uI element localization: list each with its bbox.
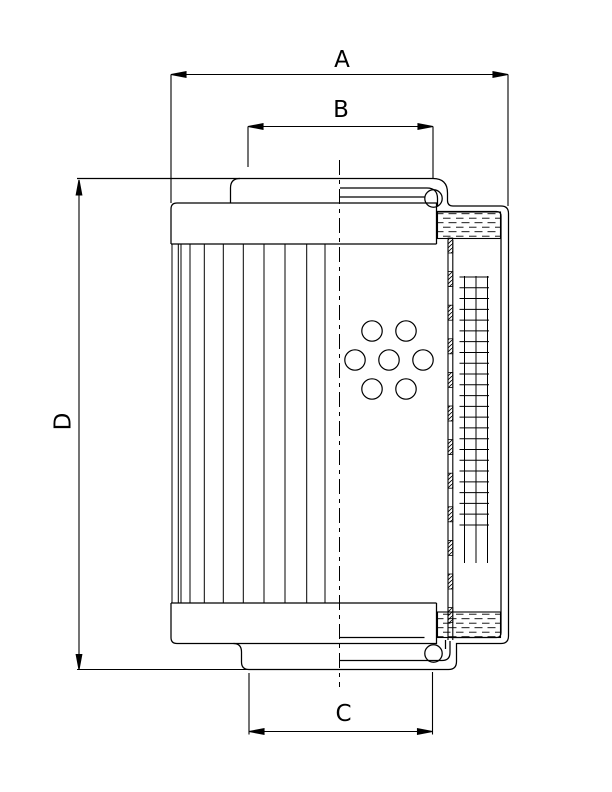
dimension-d: D xyxy=(51,180,250,670)
arrow-right-icon xyxy=(418,124,433,130)
technical-drawing-page: A B C D xyxy=(0,0,612,792)
core-tube-hatch xyxy=(448,238,453,623)
pleat-lines xyxy=(172,244,325,603)
o-ring-top xyxy=(425,190,442,207)
arrow-left-icon xyxy=(248,124,263,130)
top-end-cap xyxy=(171,179,438,245)
filter-element-drawing: A B C D xyxy=(0,0,612,792)
dimension-d-label: D xyxy=(51,413,77,431)
arrow-left-icon xyxy=(249,729,264,735)
dimension-b: B xyxy=(248,97,433,178)
perforation-holes xyxy=(345,321,433,399)
dimension-a-label: A xyxy=(334,47,350,73)
bottom-end-cap xyxy=(171,603,450,661)
filter-part xyxy=(77,179,509,670)
dimension-b-label: B xyxy=(333,97,349,123)
dimension-c-label: C xyxy=(335,701,351,727)
arrow-right-icon xyxy=(418,729,433,735)
seal-bottom xyxy=(438,612,501,638)
dimension-c: C xyxy=(249,672,433,735)
arrow-right-icon xyxy=(493,72,508,78)
arrow-down-icon xyxy=(76,655,82,670)
arrow-left-icon xyxy=(171,72,186,78)
core-tube xyxy=(448,238,453,640)
outer-shell-profile xyxy=(77,179,509,670)
mesh-screen xyxy=(460,276,490,563)
shell-inner-wall xyxy=(437,212,501,638)
o-ring-bottom xyxy=(425,645,442,662)
seal-top xyxy=(438,212,501,239)
arrow-up-icon xyxy=(76,180,82,195)
